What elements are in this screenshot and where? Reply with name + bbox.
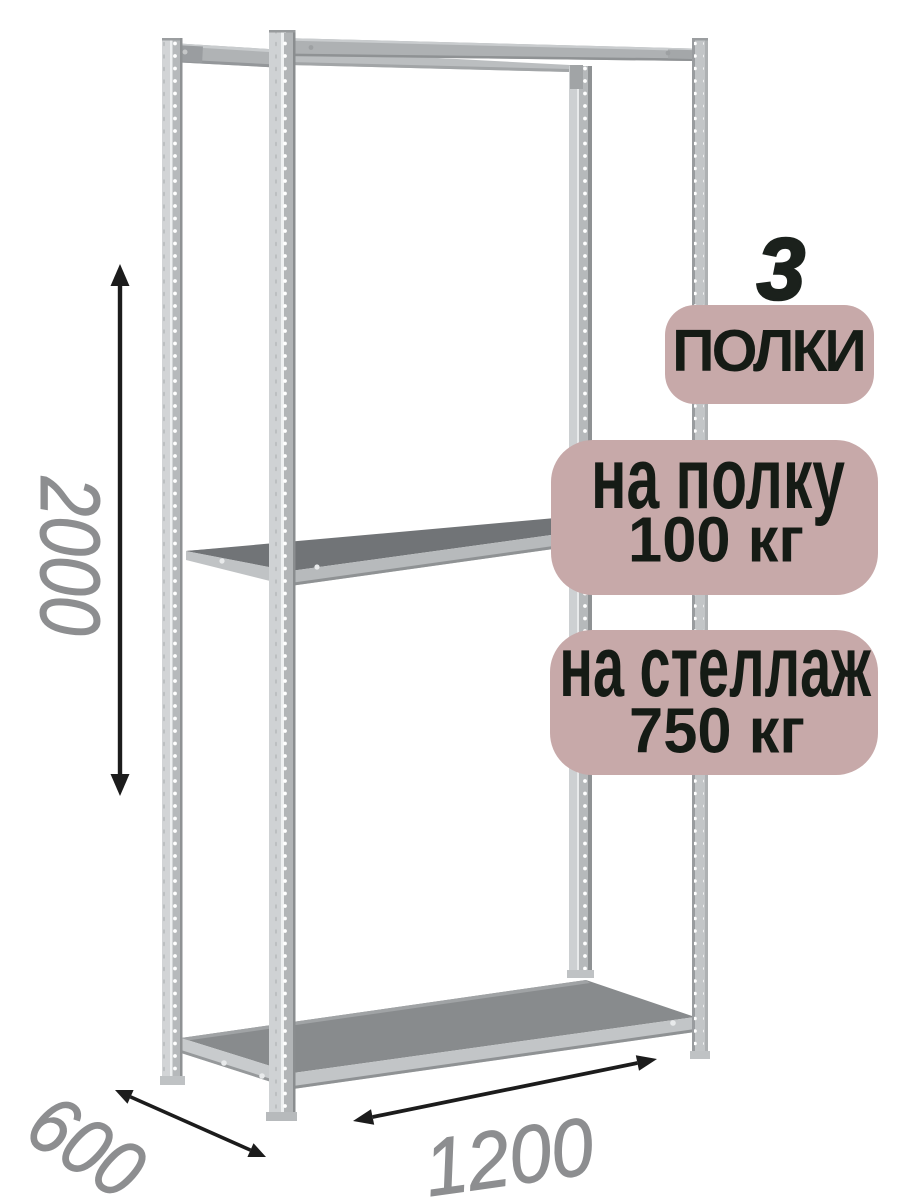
svg-text:750 кг: 750 кг <box>629 695 805 766</box>
svg-text:2000: 2000 <box>23 476 118 636</box>
svg-text:ПОЛКИ: ПОЛКИ <box>672 318 864 384</box>
svg-text:3: 3 <box>757 221 805 318</box>
svg-text:100 кг: 100 кг <box>628 504 804 575</box>
